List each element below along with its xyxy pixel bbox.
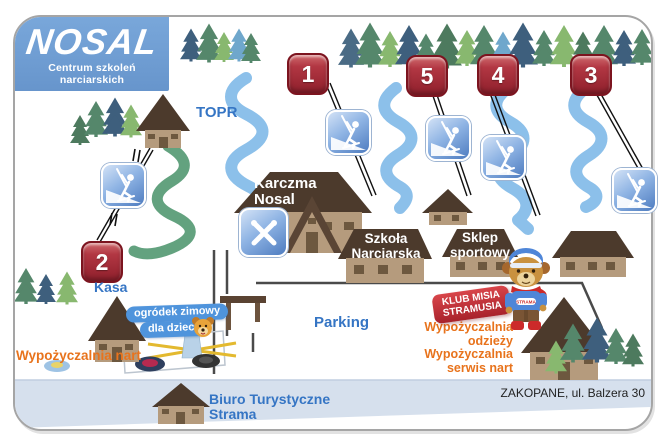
rental-serwis-label: Wypożyczalnia serwis nart <box>420 348 513 375</box>
karczma-line1: Karczma <box>254 176 317 192</box>
surface-lift-icon <box>326 110 371 155</box>
slope-marker-1: 1 <box>287 53 329 95</box>
szkola-label: Szkoła Narciarska <box>340 232 432 261</box>
slope-marker-4: 4 <box>477 54 519 96</box>
teddy-bear-mascot: STRAMA <box>499 246 555 332</box>
slope-3 <box>574 88 601 207</box>
biuro-line1: Biuro Turystyczne <box>209 392 330 407</box>
parking-label: Parking <box>314 314 369 331</box>
logo-title: NOSAL <box>12 22 172 62</box>
marker-number: 2 <box>96 249 109 276</box>
marker-number: 5 <box>421 63 434 90</box>
topr-hut <box>136 94 190 148</box>
biuro-label: Biuro Turystyczne Strama <box>209 392 330 422</box>
odziez-line2: odzieży <box>420 335 513 349</box>
slope-marker-3: 3 <box>570 54 612 96</box>
serwis-line1: Wypożyczalnia <box>420 348 513 362</box>
slope-marker-2: 2 <box>81 241 123 283</box>
slope-marker-5: 5 <box>406 55 448 97</box>
ski-map-page: { "logo": { "title": "NOSAL", "subtitle"… <box>0 0 665 443</box>
topr-label: TOPR <box>196 104 237 121</box>
surface-lift-icon <box>101 163 146 208</box>
szkola-line2: Narciarska <box>340 247 432 262</box>
address-label: ZAKOPANE, ul. Balzera 30 <box>460 386 645 400</box>
nosal-logo: NOSAL Centrum szkoleń narciarskich <box>15 17 169 91</box>
logo-subtitle: Centrum szkoleń narciarskich <box>15 62 169 86</box>
restaurant-icon <box>239 208 288 257</box>
marker-number: 1 <box>302 61 315 88</box>
rental-nart-label: Wypożyczalnia nart <box>16 348 141 363</box>
bear-face-icon <box>191 315 215 339</box>
biuro-line2: Strama <box>209 407 330 422</box>
surface-lift-icon <box>612 168 657 213</box>
szkola-line1: Szkoła <box>340 232 432 247</box>
small-hut <box>422 189 473 225</box>
serwis-line2: serwis nart <box>420 362 513 376</box>
karczma-label: Karczma Nosal <box>254 176 317 208</box>
marker-number: 3 <box>585 62 598 89</box>
mascot-shirt-text: STRAMA <box>516 299 536 304</box>
surface-lift-icon <box>481 135 526 180</box>
kasa-label: Kasa <box>94 279 127 295</box>
right-hut <box>552 231 634 277</box>
marker-number: 4 <box>492 62 505 89</box>
surface-lift-icon <box>426 116 471 161</box>
slope-5 <box>384 88 411 208</box>
sklep-line1: Sklep <box>440 231 520 246</box>
karczma-line2: Nosal <box>254 192 317 208</box>
